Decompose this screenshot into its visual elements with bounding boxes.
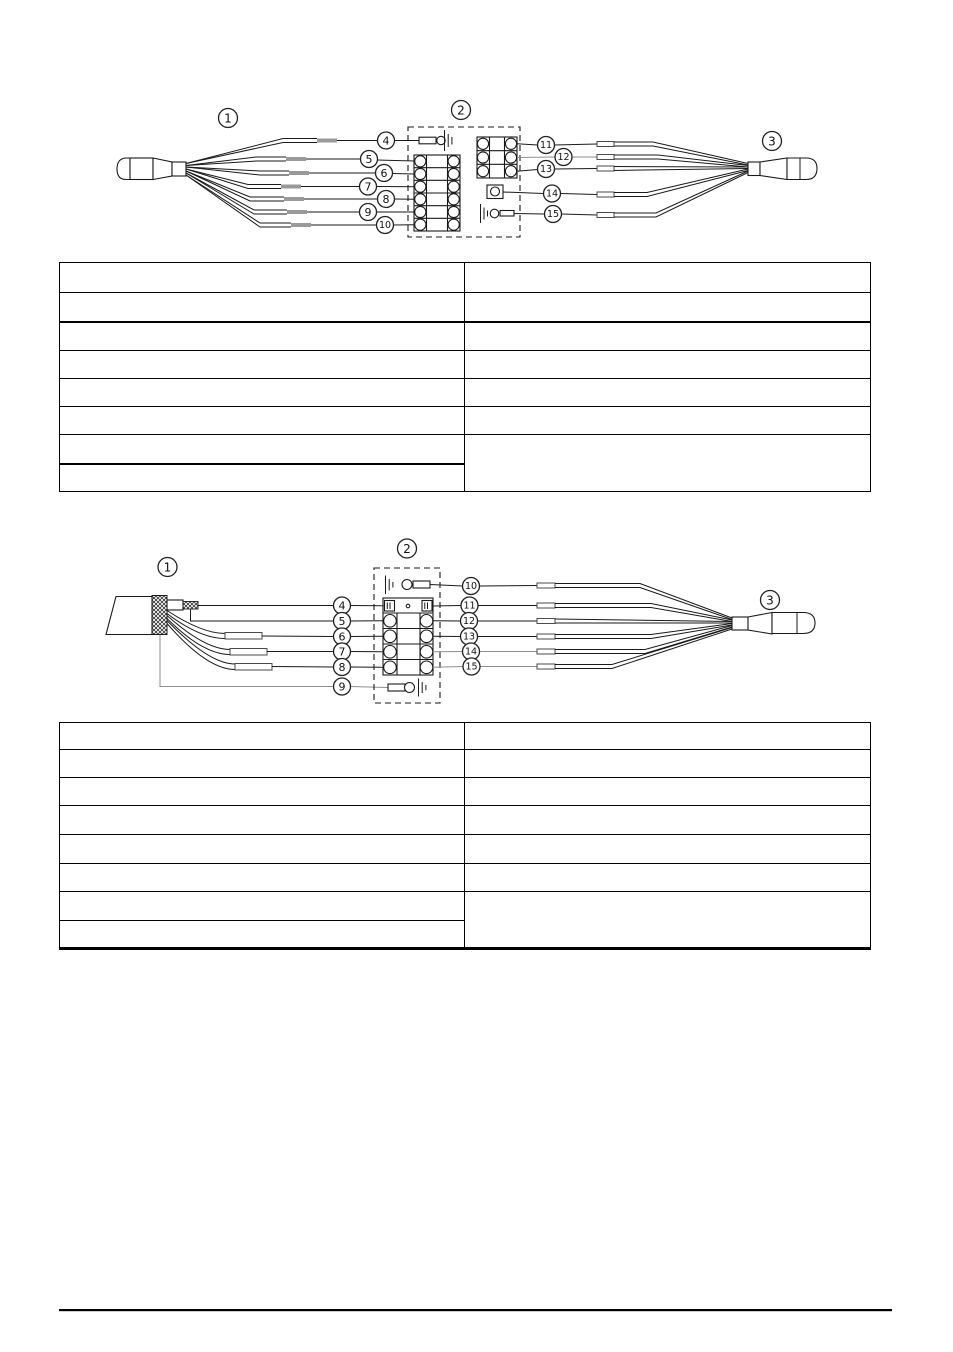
table-cell: [60, 293, 465, 322]
table-cell: [60, 464, 465, 492]
d2-wire-harness-left: [160, 606, 388, 688]
d2-pin-label-10: 10: [463, 578, 480, 595]
footer-rule: [59, 1309, 892, 1311]
d1-pin-label-14: 14: [544, 185, 561, 202]
d2-ground-lug-top: [386, 576, 431, 595]
table-cell: [464, 778, 871, 806]
svg-text:12: 12: [557, 152, 569, 163]
table-cell: [60, 750, 465, 778]
d2-pin-label-15: 15: [463, 658, 480, 675]
svg-text:6: 6: [339, 631, 346, 644]
svg-text:2: 2: [403, 542, 411, 556]
d1-connector-left: [117, 158, 186, 180]
table-cell: [60, 778, 465, 806]
svg-text:6: 6: [381, 167, 388, 180]
svg-text:13: 13: [463, 632, 475, 643]
svg-text:15: 15: [465, 662, 477, 673]
table-cell: [464, 835, 871, 864]
svg-text:7: 7: [365, 181, 372, 194]
wiring-table-1: [59, 262, 871, 492]
d1-ground-lug-bottom: [481, 204, 515, 223]
table-cell: [464, 864, 871, 892]
d1-pin-label-5: 5: [361, 151, 378, 168]
d1-terminal-block-left: [414, 155, 460, 231]
svg-text:9: 9: [365, 206, 372, 219]
table-cell: [60, 921, 465, 949]
svg-text:11: 11: [463, 601, 475, 612]
d2-cable-end: [106, 596, 198, 635]
page: 1 2 3 4 5 6 7 8 9 10 11 12 13 14 15: [0, 0, 953, 1352]
table-cell: [60, 322, 465, 351]
d1-junction-box: [408, 127, 555, 237]
d2-ref-label-1: 1: [158, 558, 177, 577]
d1-ref-label-2: 2: [452, 101, 471, 120]
table-cell: [60, 263, 465, 293]
diagram-2: 1 2 3 4 5 6 7 8 9 10 11 12 13 14 15: [106, 539, 815, 703]
svg-text:10: 10: [379, 220, 391, 231]
svg-text:5: 5: [339, 615, 346, 628]
table-cell: [464, 322, 871, 351]
svg-text:4: 4: [383, 135, 390, 148]
d1-pin-label-13: 13: [538, 161, 555, 178]
table-cell: [464, 806, 871, 835]
d1-pin-label-8: 8: [378, 191, 395, 208]
d1-wire-harness-left: [186, 139, 419, 228]
d1-terminal-block-right: [477, 137, 517, 178]
svg-text:10: 10: [465, 581, 477, 592]
svg-text:14: 14: [546, 189, 558, 200]
d1-pin-label-9: 9: [360, 204, 377, 221]
d1-pin-label-4: 4: [378, 132, 395, 149]
svg-text:13: 13: [540, 164, 552, 175]
svg-text:8: 8: [383, 193, 390, 206]
d1-pin-label-10: 10: [377, 217, 394, 234]
table-cell: [464, 750, 871, 778]
d2-pin-label-12: 12: [461, 613, 478, 630]
svg-text:4: 4: [339, 600, 346, 613]
diagrams-canvas: 1 2 3 4 5 6 7 8 9 10 11 12 13 14 15: [0, 0, 953, 1352]
wiring-table-2: [59, 722, 871, 950]
d1-pin-label-6: 6: [376, 165, 393, 182]
table-cell: [60, 864, 465, 892]
table-cell: [464, 379, 871, 407]
svg-text:1: 1: [164, 561, 172, 575]
svg-text:11: 11: [540, 140, 552, 151]
d1-ref-label-3: 3: [763, 132, 782, 151]
d2-pin-label-4: 4: [334, 597, 351, 614]
table-cell: [60, 892, 465, 921]
d1-pin-label-11: 11: [538, 137, 555, 154]
table-cell: [464, 351, 871, 379]
svg-text:3: 3: [768, 135, 776, 149]
d1-ref-label-1: 1: [219, 109, 238, 128]
d1-wire-harness-right: [555, 142, 749, 218]
table-cell: [60, 723, 465, 750]
table-cell: [60, 835, 465, 864]
table-cell: [464, 723, 871, 750]
d2-ref-label-3: 3: [761, 591, 780, 610]
svg-text:12: 12: [463, 616, 475, 627]
d2-ref-label-2: 2: [398, 539, 417, 558]
svg-text:1: 1: [224, 112, 232, 126]
svg-text:5: 5: [366, 153, 373, 166]
table-cell: [60, 435, 465, 464]
d2-pin-label-11: 11: [461, 597, 478, 614]
d1-pin-label-12: 12: [555, 149, 572, 166]
d2-pin-label-9: 9: [334, 678, 351, 695]
diagram-1: 1 2 3 4 5 6 7 8 9 10 11 12 13 14 15: [117, 101, 817, 238]
d1-socket-14: [487, 185, 503, 199]
table-cell-merged: [464, 892, 871, 949]
d1-connector-right: [748, 158, 817, 180]
table-cell: [464, 263, 871, 293]
svg-text:8: 8: [339, 661, 346, 674]
table-cell: [60, 407, 465, 435]
d2-ground-lug-bottom: [388, 679, 426, 697]
d1-ground-lug-top: [419, 130, 452, 151]
table-cell: [464, 407, 871, 435]
svg-text:9: 9: [339, 681, 346, 694]
d1-pin-label-7: 7: [360, 178, 377, 195]
d1-pin-label-15: 15: [545, 206, 562, 223]
d2-junction-box: [374, 568, 463, 703]
d2-pin-label-7: 7: [334, 643, 351, 660]
table-cell: [60, 351, 465, 379]
svg-text:3: 3: [766, 594, 774, 608]
svg-text:14: 14: [465, 647, 477, 658]
svg-text:7: 7: [339, 646, 346, 659]
svg-text:15: 15: [547, 209, 559, 220]
svg-text:2: 2: [457, 104, 465, 118]
d2-pin-label-13: 13: [461, 628, 478, 645]
d2-wire-harness-right: [478, 583, 733, 669]
d2-terminal-block: [383, 598, 433, 675]
d2-connector-right: [732, 613, 815, 635]
table-cell: [464, 293, 871, 322]
d2-pin-label-8: 8: [334, 659, 351, 676]
table-cell-merged: [464, 435, 871, 492]
table-cell: [60, 806, 465, 835]
table-cell: [60, 379, 465, 407]
d2-pin-label-5: 5: [334, 613, 351, 630]
